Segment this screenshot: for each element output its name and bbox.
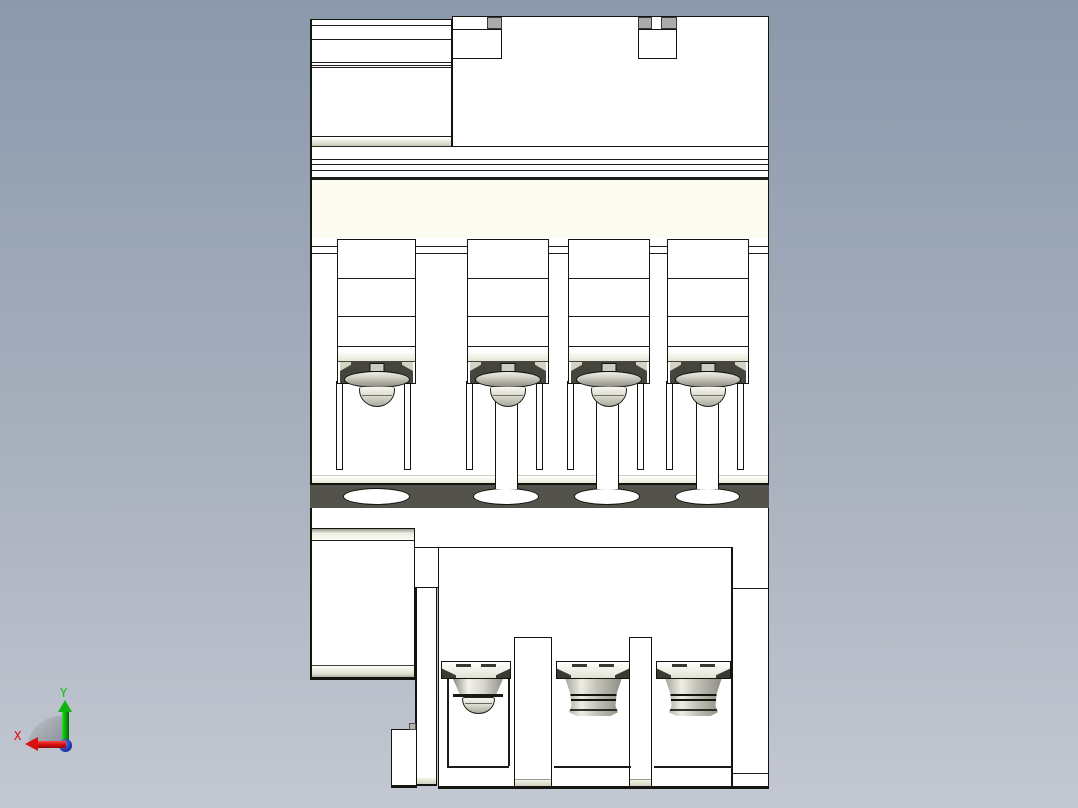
housing-step [415,547,438,588]
lower-housing-left-block[interactable] [310,528,415,680]
upper-housing-left-block[interactable] [310,19,452,147]
edge-line [569,316,649,317]
module-leg [637,381,644,470]
edge-line [733,773,768,774]
wire-opening-1[interactable] [343,488,410,505]
cap-slot-mark [572,664,587,667]
channel-wall [447,679,449,766]
cap-slot-mark [672,664,687,667]
bottom-terminal-cap-1[interactable] [441,661,511,679]
module-leg [336,381,343,470]
bottom-terminal-screw-1[interactable] [462,697,495,714]
edge-line [312,136,451,137]
cap-slot-mark [456,664,471,667]
edge-line [312,67,451,68]
edge-line [312,159,768,160]
edge-line [338,278,415,279]
bottom-terminal-cap-3[interactable] [656,661,731,679]
housing-stripe-band [310,147,769,180]
lower-housing-right-column [732,547,769,789]
mounting-slot-2[interactable] [629,637,652,786]
top-terminal-module-2[interactable] [467,239,549,384]
edge-line [312,25,451,26]
top-vent-tab [661,17,677,29]
x-axis-label: X [14,730,21,742]
housing-face-band [310,180,769,238]
lower-terminal-block[interactable] [438,547,732,789]
y-axis-label: Y [60,687,67,699]
top-notch-box [452,29,502,59]
module-leg [404,381,411,470]
terminal-screw-head-3[interactable] [576,371,642,388]
module-leg [737,381,744,470]
terminal-pin-2 [495,400,518,489]
wire-opening-2[interactable] [473,488,539,505]
edge-line [569,278,649,279]
wire-opening-3[interactable] [574,488,640,505]
edge-line [668,346,748,347]
terminal-screw-head-1[interactable] [344,371,410,388]
y-axis-arrowhead-icon [58,700,72,712]
bottom-terminal-screw-3[interactable] [663,679,724,716]
cad-canvas[interactable]: X Y [0,0,1078,808]
orientation-triad: X Y [8,684,88,760]
edge-line [338,316,415,317]
module-leg [536,381,543,470]
module-leg [567,381,574,470]
cap-slot-mark [599,664,614,667]
module-leg [666,381,673,470]
top-terminal-module-3[interactable] [568,239,650,384]
top-terminal-module-1[interactable] [337,239,416,384]
terminal-pin-4 [696,400,719,489]
terminal-pin-3 [596,400,619,489]
housing-foot-block [391,729,417,788]
edge-line [668,316,748,317]
wire-opening-4[interactable] [675,488,740,505]
edge-line [668,278,748,279]
top-vent-tab [487,17,502,29]
edge-line [733,588,768,589]
cap-slot-mark [481,664,496,667]
edge-line [312,65,451,66]
foot-tab [409,723,416,730]
channel-wall [508,679,510,766]
terminal-screw-head-2[interactable] [475,371,541,388]
edge-line [338,346,415,347]
channel-floor [654,766,732,768]
clamp-shelf [668,351,748,362]
edge-line [312,39,451,40]
clamp-shelf [338,351,415,362]
channel-floor [554,766,631,768]
top-vent-tab [638,17,652,29]
bottom-terminal-cap-2[interactable] [556,661,630,679]
bottom-terminal-screw-2[interactable] [563,679,624,716]
clamp-shelf [569,351,649,362]
edge-line [312,62,451,63]
channel-floor [447,766,509,768]
terminal-screw-head-4[interactable] [675,371,741,388]
top-terminal-module-4[interactable] [667,239,749,384]
edge-line [468,316,548,317]
housing-rib [415,588,437,786]
top-notch-box [638,29,677,59]
mounting-slot-1[interactable] [514,637,552,786]
clamp-shelf [468,351,548,362]
edge-line [468,278,548,279]
x-axis-arrow [38,741,66,748]
x-axis-arrowhead-icon [25,737,38,751]
cap-slot-mark [700,664,715,667]
edge-line [468,346,548,347]
edge-line [312,170,768,171]
edge-line [312,164,768,165]
module-leg [466,381,473,470]
edge-line [569,346,649,347]
